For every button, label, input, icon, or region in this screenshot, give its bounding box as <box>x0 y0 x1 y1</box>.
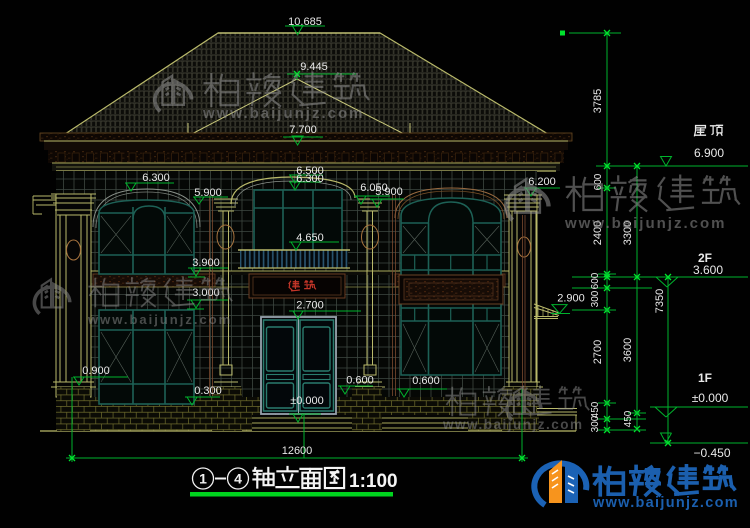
svg-text:7350: 7350 <box>654 289 666 313</box>
svg-text:7.700: 7.700 <box>289 124 317 136</box>
svg-text:9.445: 9.445 <box>300 61 328 73</box>
svg-text:0.600: 0.600 <box>346 375 374 387</box>
svg-text:±0.000: ±0.000 <box>692 391 729 405</box>
svg-text:1: 1 <box>199 471 207 487</box>
svg-text:1:100: 1:100 <box>349 471 398 492</box>
svg-text:6.900: 6.900 <box>694 146 724 160</box>
svg-text:3785: 3785 <box>592 89 604 113</box>
svg-text:1F: 1F <box>698 371 712 385</box>
svg-text:www.baijunjz.com: www.baijunjz.com <box>202 105 364 122</box>
svg-text:2700: 2700 <box>592 340 604 364</box>
svg-text:0.300: 0.300 <box>194 385 222 397</box>
svg-text:4.650: 4.650 <box>296 232 324 244</box>
svg-text:12600: 12600 <box>282 445 313 457</box>
svg-text:10.685: 10.685 <box>288 16 322 28</box>
svg-text:300: 300 <box>590 290 601 307</box>
svg-text:3.600: 3.600 <box>693 263 723 277</box>
svg-text:4: 4 <box>234 471 242 487</box>
svg-text:−0.450: −0.450 <box>693 446 730 460</box>
svg-text:2.900: 2.900 <box>557 293 585 305</box>
svg-text:3.900: 3.900 <box>192 257 220 269</box>
svg-text:6.300: 6.300 <box>142 172 170 184</box>
svg-text:2F: 2F <box>698 251 712 265</box>
svg-text:±0.000: ±0.000 <box>290 395 324 407</box>
svg-text:600: 600 <box>590 272 601 289</box>
svg-text:www.baijunjz.com: www.baijunjz.com <box>564 215 726 232</box>
svg-text:300: 300 <box>590 415 601 432</box>
svg-text:6.300: 6.300 <box>296 173 324 185</box>
svg-text:2.700: 2.700 <box>296 300 324 312</box>
svg-text:3600: 3600 <box>622 338 634 362</box>
svg-text:www.baijunjz.com: www.baijunjz.com <box>442 417 584 432</box>
svg-text:0.600: 0.600 <box>412 375 440 387</box>
svg-text:450: 450 <box>623 410 634 427</box>
svg-text:0.900: 0.900 <box>82 365 110 377</box>
svg-text:5.900: 5.900 <box>194 187 222 199</box>
svg-text:www.baijunjz.com: www.baijunjz.com <box>87 312 232 327</box>
svg-text:www.baijunjz.com: www.baijunjz.com <box>592 495 739 511</box>
svg-text:5.900: 5.900 <box>375 186 403 198</box>
